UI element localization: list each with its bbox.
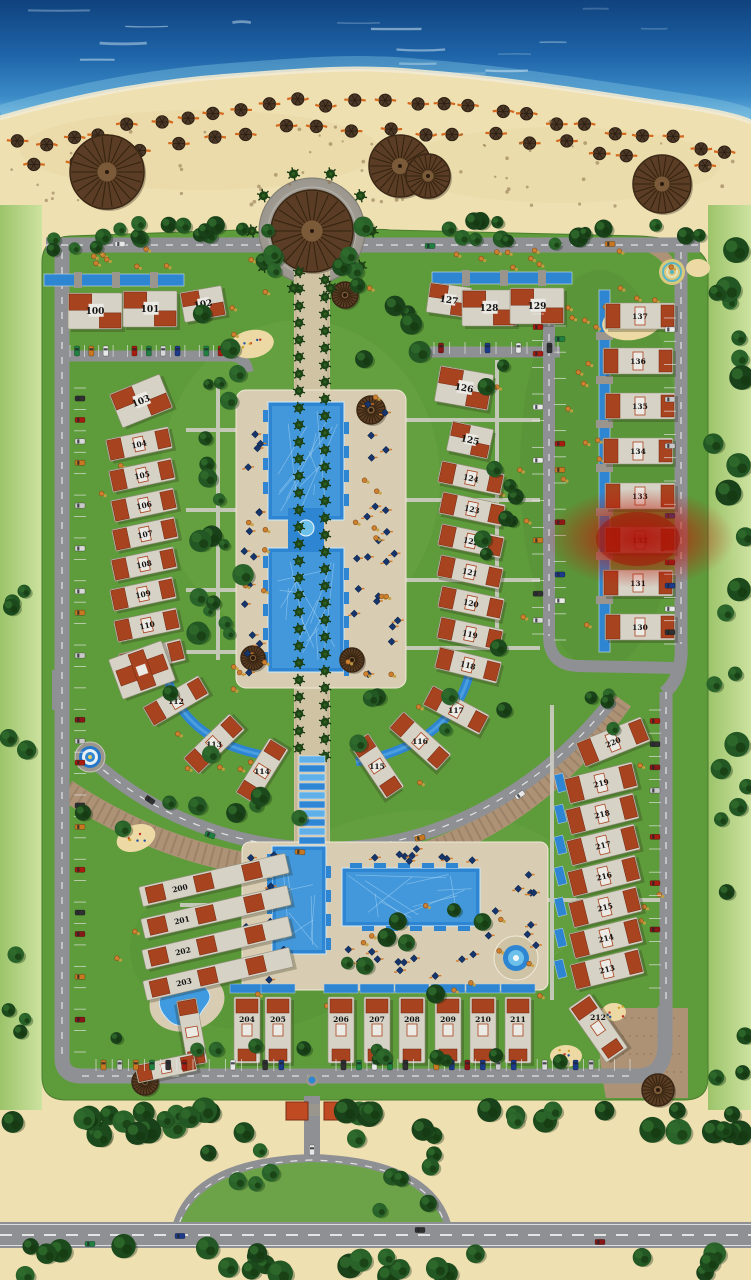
car	[101, 1060, 106, 1070]
car	[665, 630, 675, 635]
car	[533, 351, 543, 356]
selected-villa-highlight[interactable]	[545, 488, 735, 588]
car	[650, 788, 660, 793]
villa-label: 207	[369, 1015, 385, 1024]
car	[75, 760, 85, 765]
villa-label: 209	[440, 1015, 456, 1024]
car	[650, 927, 660, 932]
car	[403, 1060, 408, 1070]
car	[75, 910, 85, 915]
car	[103, 346, 108, 356]
villa-129[interactable]: 129	[510, 288, 567, 327]
car	[230, 1060, 235, 1070]
car	[161, 346, 166, 356]
villa-label: 205	[270, 1015, 286, 1024]
villa-label: 115	[369, 762, 385, 771]
villa-label: 135	[632, 402, 648, 411]
master-plan-map: 1001011021031041051061071081091101111121…	[0, 0, 751, 1280]
villa-label: 128	[480, 304, 499, 314]
pool	[263, 402, 349, 520]
villa-label: 117	[448, 706, 464, 715]
car	[555, 572, 565, 577]
thatch-pavilion	[70, 135, 146, 211]
car	[665, 327, 675, 332]
car	[75, 867, 85, 872]
car	[542, 1060, 547, 1070]
car	[516, 343, 521, 353]
villa-208[interactable]: 208	[399, 997, 428, 1066]
car	[573, 1060, 578, 1070]
round-fountain	[494, 936, 538, 980]
car	[665, 443, 675, 448]
pool	[342, 863, 480, 931]
car	[75, 824, 85, 829]
car	[75, 417, 85, 422]
site-plan: 1001011021031041051061071081091101111121…	[0, 0, 751, 1280]
car	[356, 1060, 361, 1070]
car	[665, 606, 675, 611]
car	[605, 241, 615, 246]
villa-206[interactable]: 206	[328, 997, 357, 1066]
car	[533, 591, 543, 596]
villa-label: 206	[333, 1015, 349, 1024]
car	[182, 1060, 187, 1070]
car	[555, 336, 565, 341]
car	[115, 241, 125, 246]
villa-130[interactable]: 130	[605, 614, 678, 643]
villa-134[interactable]: 134	[603, 438, 676, 467]
west-margin-lawn	[0, 205, 42, 1110]
car	[204, 346, 209, 356]
car	[555, 598, 565, 603]
villa-205[interactable]: 205	[265, 997, 294, 1066]
car	[149, 1060, 154, 1070]
car	[75, 974, 85, 979]
car	[309, 1145, 314, 1155]
villa-label: 208	[404, 1015, 420, 1024]
car	[75, 546, 85, 551]
villa-label: 212	[590, 1013, 606, 1022]
villa-label: 130	[632, 623, 648, 632]
highlight-layer	[545, 488, 735, 588]
villa-label: 211	[510, 1015, 526, 1024]
car	[480, 1060, 485, 1070]
pool	[263, 548, 349, 676]
car	[75, 439, 85, 444]
car	[511, 1060, 516, 1070]
car	[263, 1060, 268, 1070]
car	[415, 1227, 425, 1232]
villa-label: 210	[475, 1015, 491, 1024]
car	[166, 1060, 171, 1070]
car	[650, 742, 660, 747]
villa-label: 134	[630, 447, 646, 456]
car	[117, 1060, 122, 1070]
car	[533, 324, 543, 329]
car	[547, 343, 552, 353]
villa-label: 136	[630, 357, 646, 366]
car	[588, 1060, 593, 1070]
thatch-pavilion	[633, 155, 693, 215]
car	[438, 343, 443, 353]
car	[175, 1233, 185, 1238]
car	[485, 343, 490, 353]
spiral-garden	[659, 259, 685, 285]
car	[75, 610, 85, 615]
car	[132, 346, 137, 356]
car	[75, 589, 85, 594]
villa-label: 100	[86, 307, 105, 317]
car	[75, 653, 85, 658]
car	[133, 1060, 138, 1070]
car	[555, 467, 565, 472]
car	[75, 739, 85, 744]
car	[533, 458, 543, 463]
car	[650, 718, 660, 723]
car	[595, 1239, 605, 1244]
car	[533, 404, 543, 409]
car	[89, 346, 94, 356]
villa-136[interactable]: 136	[603, 348, 676, 377]
car	[295, 849, 305, 855]
west-roundabout	[75, 742, 105, 772]
gate-fountain	[306, 1074, 318, 1086]
car	[650, 765, 660, 770]
car	[555, 441, 565, 446]
villa-label: 137	[632, 312, 648, 321]
car	[341, 1060, 346, 1070]
car	[75, 717, 85, 722]
car	[75, 1017, 85, 1022]
villa-label: 129	[528, 302, 547, 312]
car	[146, 346, 151, 356]
car	[75, 460, 85, 465]
villa-204[interactable]: 204	[234, 997, 263, 1066]
villa-label: 116	[412, 737, 428, 746]
car	[279, 1060, 284, 1070]
villa-211[interactable]: 211	[505, 997, 534, 1066]
car	[425, 243, 435, 248]
car	[75, 503, 85, 508]
villa-label: 204	[239, 1015, 255, 1024]
villa-101[interactable]: 101	[123, 291, 180, 330]
villa-label: 101	[141, 305, 160, 315]
car	[533, 538, 543, 543]
car	[465, 1060, 470, 1070]
car	[665, 397, 675, 402]
car	[75, 931, 85, 936]
car	[74, 346, 79, 356]
car	[650, 881, 660, 886]
car	[650, 834, 660, 839]
car	[85, 1241, 95, 1246]
villa-100[interactable]: 100	[68, 293, 125, 332]
car	[175, 346, 180, 356]
car	[533, 618, 543, 623]
villa-label: 114	[254, 767, 270, 776]
car	[75, 396, 85, 401]
